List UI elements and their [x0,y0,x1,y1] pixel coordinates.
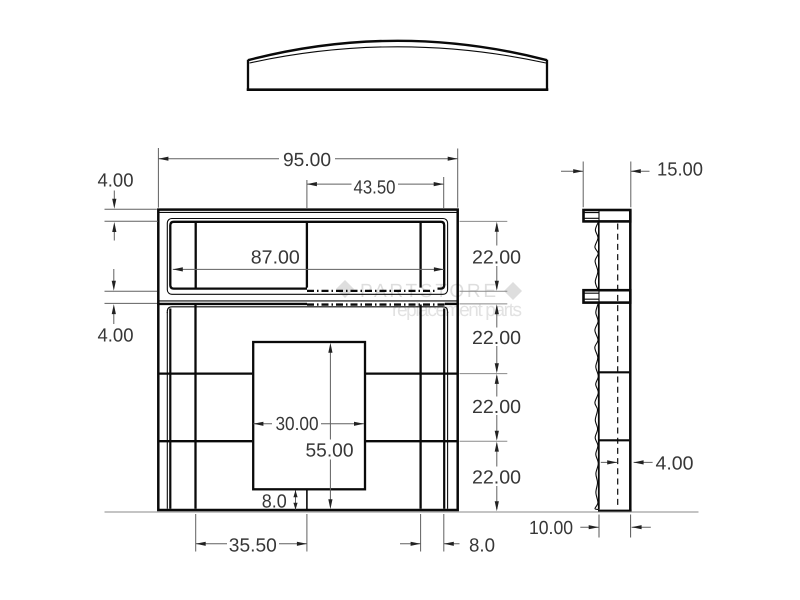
svg-text:8.0: 8.0 [262,492,287,513]
svg-text:35.50: 35.50 [229,535,277,556]
svg-text:22.00: 22.00 [472,468,521,489]
svg-text:22.00: 22.00 [472,397,521,418]
svg-text:43.50: 43.50 [354,177,396,198]
svg-text:10.00: 10.00 [529,518,573,539]
svg-text:15.00: 15.00 [657,160,703,181]
svg-text:30.00: 30.00 [276,414,319,435]
svg-text:22.00: 22.00 [472,247,521,268]
svg-text:4.00: 4.00 [98,171,134,192]
svg-text:8.0: 8.0 [469,535,495,556]
svg-text:87.00: 87.00 [251,248,300,269]
svg-text:95.00: 95.00 [283,150,331,171]
svg-text:4.00: 4.00 [656,454,694,475]
svg-text:22.00: 22.00 [472,328,521,349]
svg-text:55.00: 55.00 [306,441,354,462]
svg-text:4.00: 4.00 [98,326,134,347]
